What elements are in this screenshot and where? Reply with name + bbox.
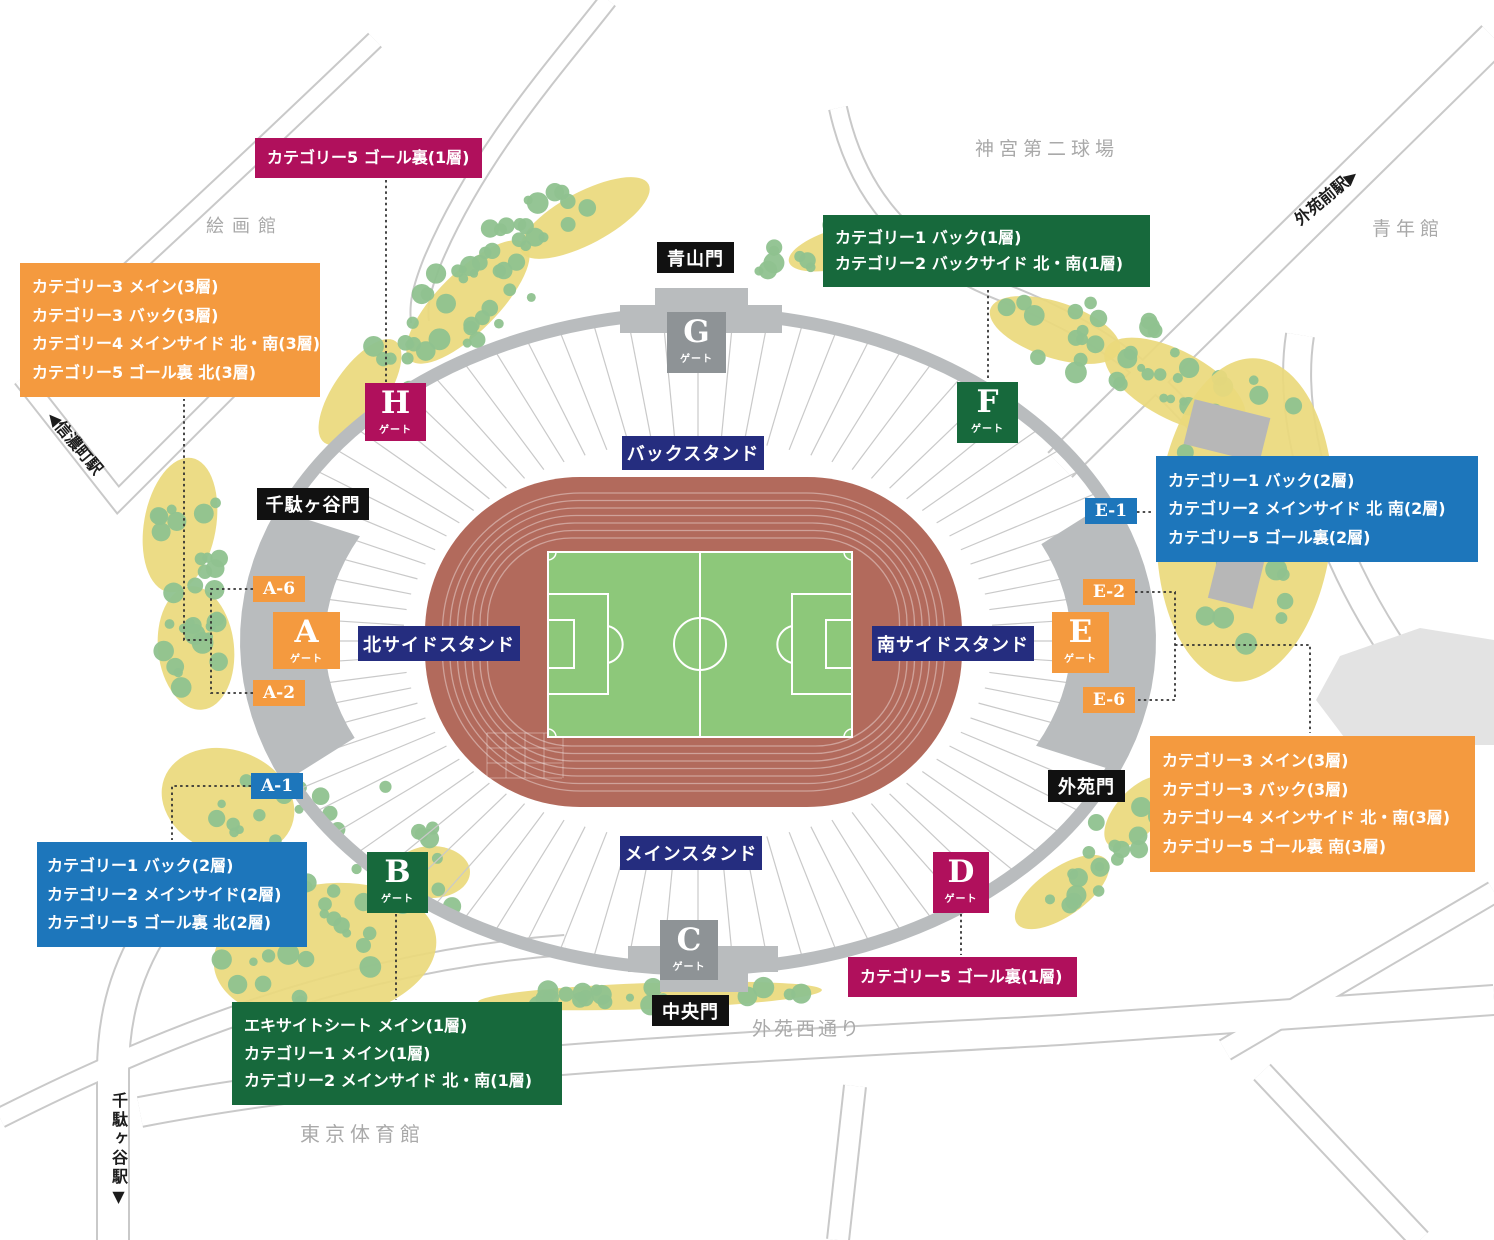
legend-line: カテゴリー3 メイン(3層) — [32, 277, 308, 297]
section-tag-e2: E-2 — [1083, 579, 1135, 605]
entrance-aoyama-mon: 青山門 — [657, 242, 734, 273]
gate-letter: A — [273, 616, 340, 649]
legend-east-2f: カテゴリー1 バック(2層) カテゴリー2 メインサイド 北 南(2層) カテゴ… — [1156, 456, 1478, 562]
gate-sublabel: ゲート — [273, 650, 340, 665]
section-tag-a1: A-1 — [251, 773, 303, 799]
legend-line: カテゴリー5 ゴール裏 北(3層) — [32, 363, 308, 383]
place-kaigakan: 絵画館 — [206, 212, 284, 238]
gate-sublabel: ゲート — [660, 958, 718, 973]
gate-letter: F — [957, 386, 1018, 419]
stand-label-main: メインスタンド — [620, 836, 762, 870]
legend-line: カテゴリー3 バック(3層) — [32, 306, 308, 326]
entrance-gaien-mon: 外苑門 — [1048, 770, 1125, 802]
section-tag-e6: E-6 — [1083, 687, 1135, 713]
legend-line: カテゴリー4 メインサイド 北・南(3層) — [1162, 808, 1463, 828]
legend-line: カテゴリー2 メインサイド 北・南(1層) — [244, 1071, 550, 1091]
gate-letter: B — [367, 856, 428, 889]
gate-letter: E — [1052, 616, 1109, 649]
legend-west-3f: カテゴリー3 メイン(3層) カテゴリー3 バック(3層) カテゴリー4 メイン… — [20, 263, 320, 397]
legend-line: カテゴリー4 メインサイド 北・南(3層) — [32, 334, 308, 354]
legend-line: カテゴリー2 メインサイド(2層) — [47, 885, 297, 905]
gate-sublabel: ゲート — [365, 421, 426, 436]
gate-letter: D — [933, 856, 989, 889]
section-tag-a2: A-2 — [253, 680, 305, 706]
legend-line: カテゴリー1 バック(1層) — [835, 228, 1138, 248]
legend-line: カテゴリー5 ゴール裏 南(3層) — [1162, 837, 1463, 857]
gate-f: F ゲート — [957, 382, 1018, 443]
legend-line: カテゴリー5 ゴール裏 北(2層) — [47, 913, 297, 933]
gate-letter: G — [667, 316, 726, 349]
legend-line: カテゴリー5 ゴール裏(1層) — [860, 967, 1065, 987]
gate-g: G ゲート — [667, 312, 726, 373]
stadium-seat-map: カテゴリー5 ゴール裏(1層) カテゴリー3 メイン(3層) カテゴリー3 バッ… — [0, 0, 1494, 1240]
gate-c: C ゲート — [660, 920, 718, 980]
legend-line: カテゴリー2 バックサイド 北・南(1層) — [835, 254, 1138, 274]
gate-letter: H — [365, 387, 426, 420]
gate-b: B ゲート — [367, 852, 428, 913]
building-block-light — [1316, 628, 1494, 745]
legend-main-1f: エキサイトシート メイン(1層) カテゴリー1 メイン(1層) カテゴリー2 メ… — [232, 1002, 562, 1105]
gate-sublabel: ゲート — [667, 350, 726, 365]
legend-west-2f: カテゴリー1 バック(2層) カテゴリー2 メインサイド(2層) カテゴリー5 … — [37, 842, 307, 947]
gate-sublabel: ゲート — [933, 890, 989, 905]
place-jingu-daini-kyujo: 神宮第二球場 — [975, 134, 1119, 161]
legend-line: エキサイトシート メイン(1層) — [244, 1016, 550, 1036]
section-tag-e1: E-1 — [1085, 498, 1137, 524]
legend-line: カテゴリー1 バック(2層) — [1168, 471, 1466, 491]
gate-sublabel: ゲート — [957, 420, 1018, 435]
legend-line: カテゴリー1 メイン(1層) — [244, 1044, 550, 1064]
gate-e: E ゲート — [1052, 612, 1109, 673]
legend-back-north-1f: カテゴリー1 バック(1層) カテゴリー2 バックサイド 北・南(1層) — [823, 215, 1150, 287]
place-seinenkan: 青年館 — [1372, 214, 1444, 241]
station-label-sendagaya: 千駄ヶ谷駅▼ — [106, 1092, 130, 1209]
gate-sublabel: ゲート — [367, 890, 428, 905]
direction-arrow-icon: ▼ — [109, 1187, 128, 1209]
entrance-chuo-mon: 中央門 — [652, 995, 729, 1026]
gate-letter: C — [660, 924, 718, 957]
legend-goal-behind-north-1f: カテゴリー5 ゴール裏(1層) — [255, 138, 482, 178]
legend-east-3f: カテゴリー3 メイン(3層) カテゴリー3 バック(3層) カテゴリー4 メイン… — [1150, 736, 1475, 872]
stand-label-north-side: 北サイドスタンド — [358, 626, 520, 661]
legend-goal-behind-south-1f: カテゴリー5 ゴール裏(1層) — [848, 957, 1077, 997]
place-gaien-nishi-dori: 外苑西通り — [752, 1014, 862, 1041]
legend-line: カテゴリー1 バック(2層) — [47, 856, 297, 876]
legend-line: カテゴリー5 ゴール裏(2層) — [1168, 528, 1466, 548]
legend-line: カテゴリー3 メイン(3層) — [1162, 751, 1463, 771]
entrance-sendagaya-mon: 千駄ヶ谷門 — [257, 488, 369, 520]
gate-sublabel: ゲート — [1052, 650, 1109, 665]
legend-line: カテゴリー5 ゴール裏(1層) — [267, 148, 470, 168]
place-tokyo-taiikukan: 東京体育館 — [300, 1118, 425, 1147]
soccer-pitch — [548, 552, 852, 737]
section-tag-a6: A-6 — [253, 576, 305, 602]
stand-label-back: バックスタンド — [622, 436, 764, 470]
legend-line: カテゴリー2 メインサイド 北 南(2層) — [1168, 499, 1466, 519]
station-name: 千駄ヶ谷駅 — [109, 1092, 128, 1187]
gate-h: H ゲート — [365, 383, 426, 441]
gate-a: A ゲート — [273, 612, 340, 669]
gate-d: D ゲート — [933, 852, 989, 913]
legend-line: カテゴリー3 バック(3層) — [1162, 780, 1463, 800]
stand-label-south-side: 南サイドスタンド — [872, 626, 1034, 661]
stadium-map-graphic — [0, 0, 1494, 1240]
